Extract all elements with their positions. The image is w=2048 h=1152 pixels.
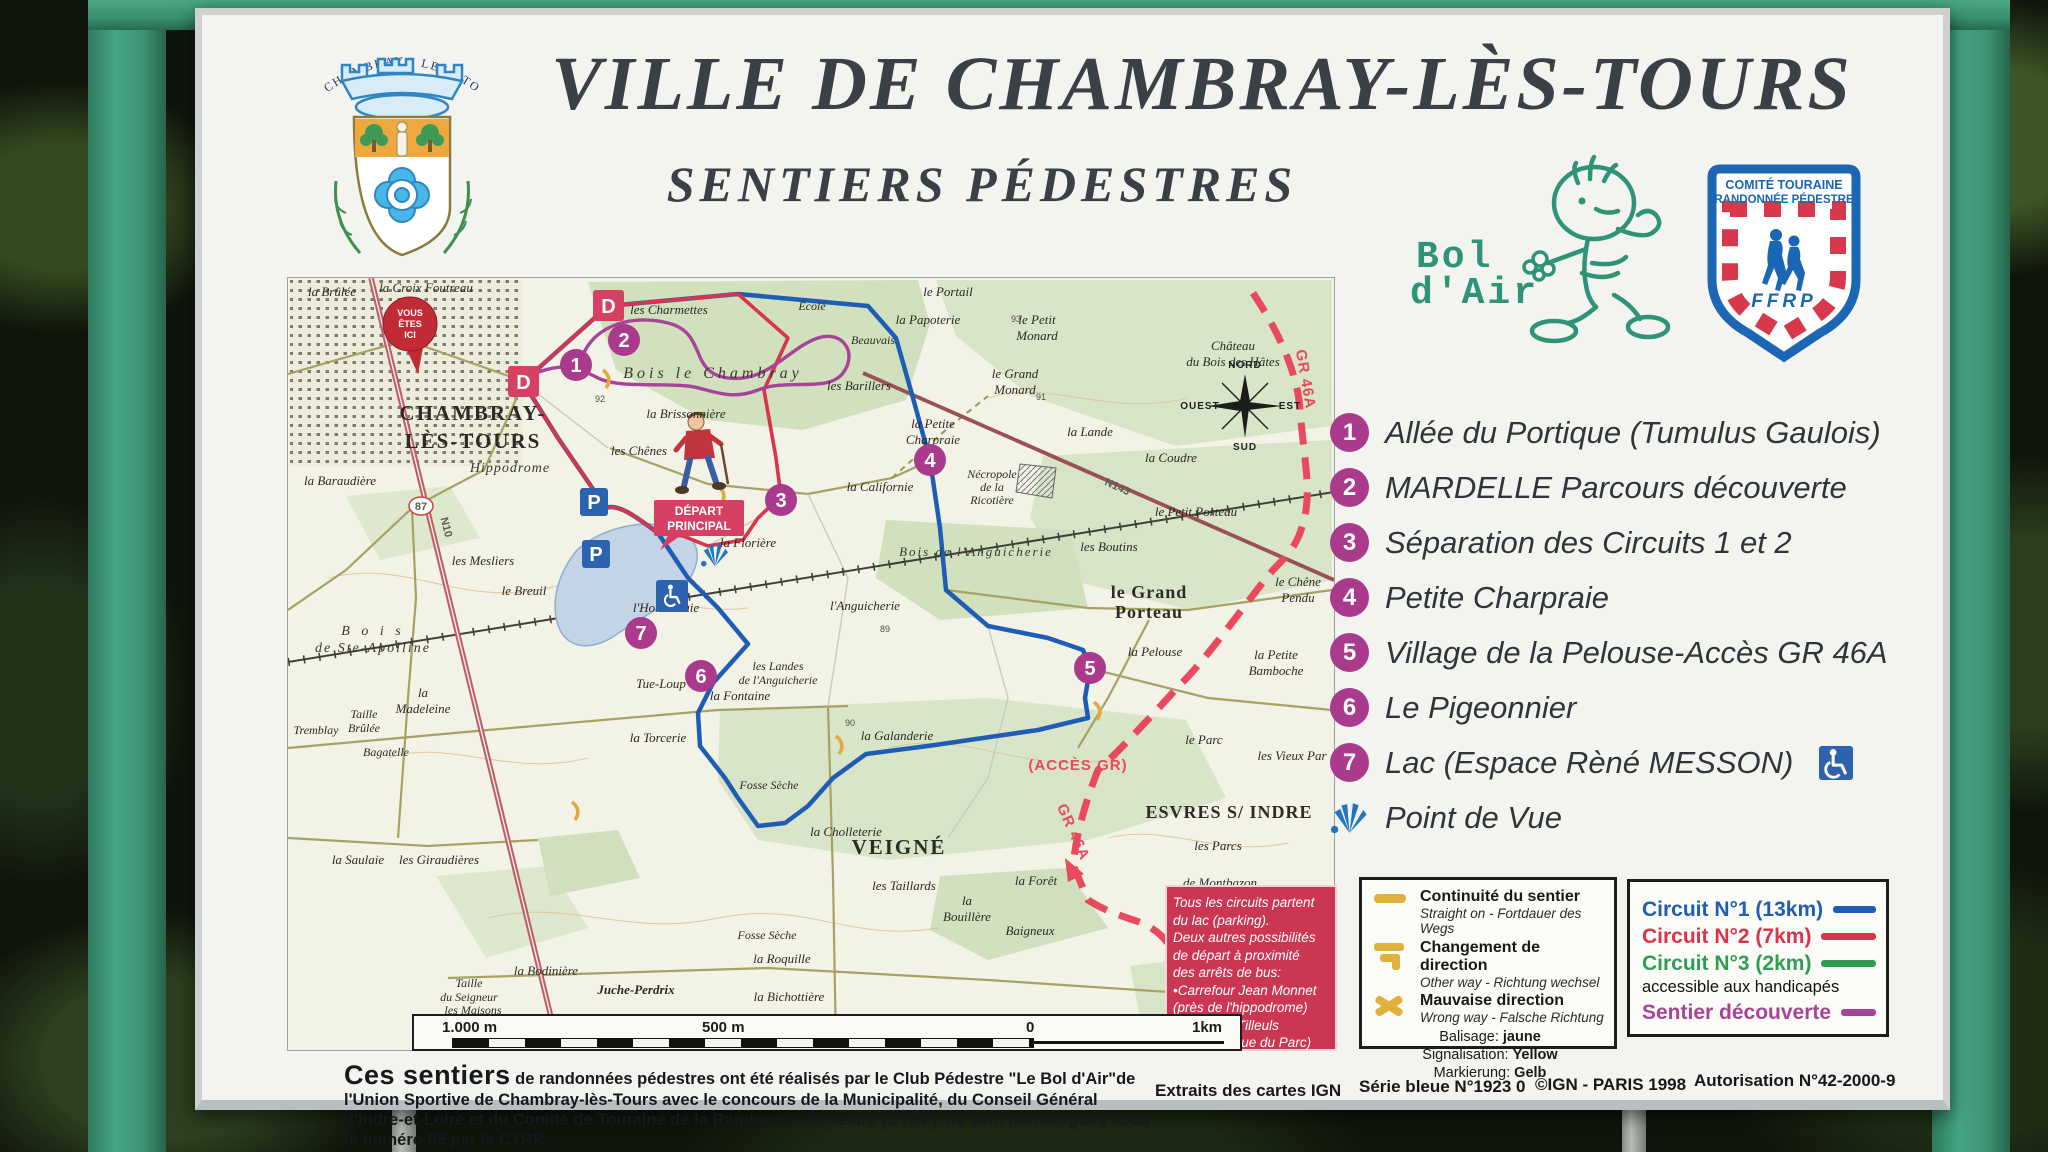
svg-text:Bouillère: Bouillère (943, 909, 991, 924)
list-item: 6 Le Pigeonnier (1330, 680, 1940, 735)
scale-bar-checkered (452, 1038, 1034, 1048)
list-item: 3 Séparation des Circuits 1 et 2 (1330, 515, 1940, 570)
svg-text:93: 93 (1011, 314, 1021, 324)
svg-text:de Ste-Apolline: de Ste-Apolline (315, 641, 431, 656)
svg-text:92: 92 (595, 394, 605, 404)
svg-text:Porteau: Porteau (1115, 602, 1183, 622)
list-item: 5 Village de la Pelouse-Accès GR 46A (1330, 625, 1940, 680)
svg-text:les Parcs: les Parcs (1194, 838, 1242, 853)
waypoint-5-badge: 5 (1330, 633, 1369, 672)
wrong-way-mark-icon (1372, 992, 1412, 1025)
circuit-2-line (1821, 933, 1876, 940)
compass-ouest: OUEST (1180, 401, 1219, 412)
compass-sud: SUD (1233, 442, 1257, 453)
map-necropole-area (1016, 464, 1056, 498)
svg-text:la Croix Foutreau: la Croix Foutreau (379, 280, 473, 295)
legend-row: Circuit N°3 (2km) (1642, 950, 1876, 977)
svg-text:Taille: Taille (456, 976, 484, 990)
svg-text:du Bois des Hâtes: du Bois des Hâtes (1186, 354, 1280, 369)
svg-text:le Parc: le Parc (1185, 732, 1223, 747)
wheelchair-icon (1819, 746, 1853, 780)
svg-text:Bamboche: Bamboche (1249, 663, 1304, 678)
ffrp-band-text-2: RANDONNÉE PÉDESTRE (1714, 193, 1854, 206)
info-line: Deux autres possibilités (1173, 929, 1329, 947)
svg-text:2: 2 (618, 330, 629, 352)
compass-est: EST (1279, 401, 1301, 412)
scale-500m: 500 m (702, 1019, 745, 1036)
svg-text:P: P (587, 492, 600, 514)
waypoint-1-badge: 1 (1330, 413, 1369, 452)
svg-text:le Breuil: le Breuil (502, 583, 547, 598)
legend-fr: Continuité du sentier (1420, 888, 1608, 906)
svg-text:la Papoterie: la Papoterie (896, 312, 961, 327)
svg-text:la Saulaie: la Saulaie (332, 852, 385, 867)
svg-text:le Petit: le Petit (1018, 312, 1056, 327)
legend-other: Other way - Richtung wechsel (1420, 975, 1608, 991)
signalisation-line: Signalisation: Yellow (1372, 1046, 1608, 1064)
sentier-decouverte-label: Sentier découverte (1642, 1001, 1831, 1025)
depart-label-1: DÉPART (675, 503, 724, 518)
svg-text:7: 7 (635, 623, 646, 645)
info-line: de départ à proximité (1173, 947, 1329, 965)
svg-text:la Torcerie: la Torcerie (630, 730, 687, 745)
svg-text:les Landes: les Landes (753, 659, 804, 673)
waymark-legend-box: Continuité du sentier Straight on - Fort… (1359, 877, 1617, 1049)
legend-row: Circuit N°1 (13km) (1642, 896, 1876, 923)
sentier-decouverte-line (1841, 1009, 1876, 1016)
scale-1000m: 1.000 m (442, 1019, 497, 1036)
list-item: 4 Petite Charpraie (1330, 570, 1940, 625)
svg-text:les Chênes: les Chênes (611, 443, 667, 458)
svg-text:le Grand: le Grand (992, 366, 1039, 381)
circuit-legend-box: Circuit N°1 (13km) Circuit N°2 (7km) Cir… (1627, 879, 1889, 1037)
legend-row: Circuit N°2 (7km) (1642, 923, 1876, 950)
svg-text:du Seigneur: du Seigneur (440, 990, 498, 1004)
svg-text:la: la (962, 893, 973, 908)
svg-text:de la: de la (980, 480, 1004, 494)
svg-text:de l'Anguicherie: de l'Anguicherie (739, 673, 819, 687)
svg-text:D: D (516, 372, 530, 394)
svg-text:ESVRES S/ INDRE: ESVRES S/ INDRE (1145, 802, 1312, 822)
map-scale-bar: 1.000 m 500 m 0 1km (412, 1014, 1242, 1051)
acces-gr-label: (ACCÈS GR) (1028, 757, 1127, 774)
circuit-2-label: Circuit N°2 (7km) (1642, 925, 1811, 949)
sign-subtitle: SENTIERS PÉDESTRES (632, 155, 1332, 213)
svg-text:Bagatelle: Bagatelle (363, 745, 410, 759)
credit-serie: Série bleue N°1923 0 (1359, 1077, 1526, 1097)
svg-text:Taille: Taille (351, 707, 379, 721)
scale-1km: 1km (1192, 1019, 1222, 1036)
straight-on-mark-icon (1372, 888, 1412, 937)
svg-text:Bois le Chambray: Bois le Chambray (623, 365, 803, 382)
crest-crown-icon (342, 59, 462, 119)
waypoint-7-badge: 7 (1330, 743, 1369, 782)
credit-ign: ©IGN - PARIS 1998 (1535, 1075, 1686, 1095)
chambray-coat-of-arms: CHAMBRAY - LES - TOURS (302, 21, 502, 273)
svg-text:Monard: Monard (1015, 328, 1058, 343)
accessibility-note: accessible aux handicapés (1642, 978, 1876, 997)
sign-post-left (88, 0, 166, 1152)
svg-text:Monard: Monard (993, 382, 1036, 397)
svg-text:la Pelouse: la Pelouse (1128, 644, 1183, 659)
waypoint-6-label: Le Pigeonnier (1385, 690, 1576, 726)
svg-text:90: 90 (845, 718, 855, 728)
vous-etes-ici-2: ÊTES (398, 318, 422, 329)
point-de-vue-label: Point de Vue (1385, 800, 1562, 836)
svg-text:la: la (418, 685, 429, 700)
svg-text:les Mesliers: les Mesliers (452, 553, 514, 568)
waypoint-3-label: Séparation des Circuits 1 et 2 (1385, 525, 1792, 561)
svg-text:89: 89 (880, 624, 890, 634)
svg-text:CHAMBRAY-: CHAMBRAY- (399, 401, 546, 425)
turn-mark-icon (1372, 939, 1412, 990)
svg-text:la Roquille: la Roquille (753, 951, 811, 966)
svg-text:les Vieux Par: les Vieux Par (1257, 748, 1327, 763)
ffrp-band-text-1: COMITÉ TOURAINE (1725, 177, 1842, 192)
svg-text:LÈS-TOURS: LÈS-TOURS (405, 429, 542, 453)
list-item: 1 Allée du Portique (Tumulus Gaulois) (1330, 405, 1940, 460)
legend-row: Changement de direction Other way - Rich… (1372, 939, 1608, 990)
svg-text:P: P (589, 544, 602, 566)
scale-bar-line (1032, 1041, 1224, 1044)
svg-text:Pendu: Pendu (1280, 590, 1315, 605)
svg-text:Ricotière: Ricotière (969, 493, 1014, 507)
svg-text:Juche-Perdrix: Juche-Perdrix (596, 982, 675, 997)
svg-text:la Brissonnière: la Brissonnière (646, 406, 726, 421)
svg-text:la Bodinière: la Bodinière (514, 963, 578, 978)
legend-row: Continuité du sentier Straight on - Fort… (1372, 888, 1608, 937)
waypoint-4-label: Petite Charpraie (1385, 580, 1609, 616)
credit-extraits: Extraits des cartes IGN (1155, 1081, 1341, 1101)
svg-text:les Charmettes: les Charmettes (630, 302, 708, 317)
waypoint-4-badge: 4 (1330, 578, 1369, 617)
svg-text:Hippodrome: Hippodrome (469, 461, 550, 476)
svg-text:la Florière: la Florière (720, 535, 776, 550)
waypoint-3-badge: 3 (1330, 523, 1369, 562)
bol-dair-logo: Bol d'Air (1382, 145, 1702, 355)
svg-text:la Baraudière: la Baraudière (304, 473, 376, 488)
depart-label-2: PRINCIPAL (667, 519, 731, 533)
scale-0: 0 (1026, 1019, 1034, 1036)
information-panel: CHAMBRAY - LES - TOURS (195, 8, 1950, 1110)
svg-text:le Petit Porteau: le Petit Porteau (1155, 504, 1238, 519)
svg-text:le Grand: le Grand (1111, 582, 1188, 602)
waypoint-7-label: Lac (Espace Rèné MESSON) (1385, 745, 1793, 781)
waypoint-1-label: Allée du Portique (Tumulus Gaulois) (1385, 415, 1881, 451)
svg-text:Château: Château (1211, 338, 1256, 353)
waypoint-6-badge: 6 (1330, 688, 1369, 727)
list-item: 2 MARDELLE Parcours découverte (1330, 460, 1940, 515)
svg-text:Fosse Sèche: Fosse Sèche (739, 778, 800, 792)
svg-text:la Bichottière: la Bichottière (754, 989, 825, 1004)
info-line: •Carrefour Jean Monnet (1173, 982, 1329, 1000)
waypoint-5-label: Village de la Pelouse-Accès GR 46A (1385, 635, 1888, 671)
svg-text:Tremblay: Tremblay (294, 723, 340, 737)
info-line: des arrêts de bus: (1173, 964, 1329, 982)
vous-etes-ici-1: VOUS (397, 308, 423, 318)
waypoint-2-label: MARDELLE Parcours découverte (1385, 470, 1847, 506)
svg-text:la Californie: la Californie (847, 479, 914, 494)
crest-figure-icon (397, 122, 407, 156)
svg-text:les Taillards: les Taillards (872, 878, 936, 893)
circuit-3-label: Circuit N°3 (2km) (1642, 952, 1811, 976)
road-shield-87: 87 (415, 501, 427, 513)
svg-text:le Portail: le Portail (923, 284, 973, 299)
svg-text:le Chêne: le Chêne (1275, 574, 1321, 589)
credits-paragraph: Ces sentiers de randonnées pédestres ont… (344, 1059, 1160, 1151)
svg-text:91: 91 (1036, 392, 1046, 402)
ffrp-logo: COMITÉ TOURAINE RANDONNÉE PÉDESTRE FFRP (1700, 161, 1868, 377)
svg-text:Nécropole: Nécropole (966, 467, 1017, 481)
circuit-1-label: Circuit N°1 (13km) (1642, 898, 1823, 922)
svg-text:les Boutins: les Boutins (1080, 539, 1137, 554)
svg-text:la Petite: la Petite (1254, 647, 1298, 662)
svg-text:4: 4 (924, 450, 936, 472)
svg-text:l'Anguicherie: l'Anguicherie (830, 598, 900, 613)
credits-lead: Ces sentiers (344, 1060, 511, 1090)
sign-title: VILLE DE CHAMBRAY-LÈS-TOURS (502, 41, 1902, 128)
svg-text:B o i s: B o i s (341, 624, 404, 639)
svg-text:la Brûlée: la Brûlée (308, 284, 356, 299)
legend-other: Wrong way - Falsche Richtung (1420, 1010, 1604, 1026)
crest-shield (354, 117, 450, 255)
svg-text:École: École (797, 299, 826, 313)
photo-of-trail-sign: CHAMBRAY - LES - TOURS (0, 0, 2048, 1152)
svg-text:la Fontaine: la Fontaine (710, 688, 771, 703)
svg-text:D: D (601, 296, 615, 318)
svg-text:Tue-Loup: Tue-Loup (636, 676, 686, 691)
svg-text:Fosse Sèche: Fosse Sèche (737, 928, 798, 942)
svg-text:3: 3 (775, 490, 786, 512)
svg-text:Madeleine: Madeleine (395, 701, 451, 716)
info-line: du lac (parking). (1173, 912, 1329, 930)
legend-fr: Mauvaise direction (1420, 992, 1604, 1010)
bol-dair-mascot-icon (1524, 157, 1668, 341)
svg-text:5: 5 (1084, 658, 1095, 680)
circuit-3-line (1821, 960, 1876, 967)
svg-text:la Coudre: la Coudre (1145, 450, 1197, 465)
svg-text:Beauvais: Beauvais (851, 333, 895, 347)
credit-autorisation: Autorisation N°42-2000-9 (1694, 1071, 1895, 1091)
svg-text:la Forêt: la Forêt (1015, 873, 1058, 888)
bol-dair-text-2: d'Air (1410, 272, 1539, 315)
legend-row: Sentier découverte (1642, 999, 1876, 1026)
svg-text:la Petite: la Petite (911, 416, 955, 431)
svg-text:1: 1 (570, 355, 581, 377)
legend-fr: Changement de direction (1420, 939, 1608, 975)
info-line: Tous les circuits partent (1173, 894, 1329, 912)
svg-text:la Galanderie: la Galanderie (861, 728, 934, 743)
balisage-line: Balisage: jaune (1372, 1028, 1608, 1046)
svg-text:les Barillers: les Barillers (827, 378, 891, 393)
svg-text:la Lande: la Lande (1067, 424, 1113, 439)
svg-text:Bois de l'Anguicherie: Bois de l'Anguicherie (899, 544, 1053, 559)
legend-row: Mauvaise direction Wrong way - Falsche R… (1372, 992, 1608, 1025)
svg-text:6: 6 (695, 666, 706, 688)
list-item: Point de Vue (1330, 790, 1940, 845)
circuit-1-line (1833, 906, 1876, 913)
svg-text:Brûlée: Brûlée (348, 721, 381, 735)
waypoint-legend: 1 Allée du Portique (Tumulus Gaulois) 2 … (1330, 405, 1940, 845)
legend-other: Straight on - Fortdauer des Wegs (1420, 906, 1608, 937)
vous-etes-ici-3: ICI (404, 330, 416, 340)
waypoint-2-badge: 2 (1330, 468, 1369, 507)
list-item: 7 Lac (Espace Rèné MESSON) (1330, 735, 1940, 790)
svg-text:Baigneux: Baigneux (1005, 923, 1054, 938)
point-de-vue-icon (1330, 800, 1369, 836)
svg-text:VEIGNÉ: VEIGNÉ (852, 835, 947, 859)
svg-text:les Giraudières: les Giraudières (399, 852, 479, 867)
ffrp-acronym: FFRP (1751, 291, 1817, 312)
